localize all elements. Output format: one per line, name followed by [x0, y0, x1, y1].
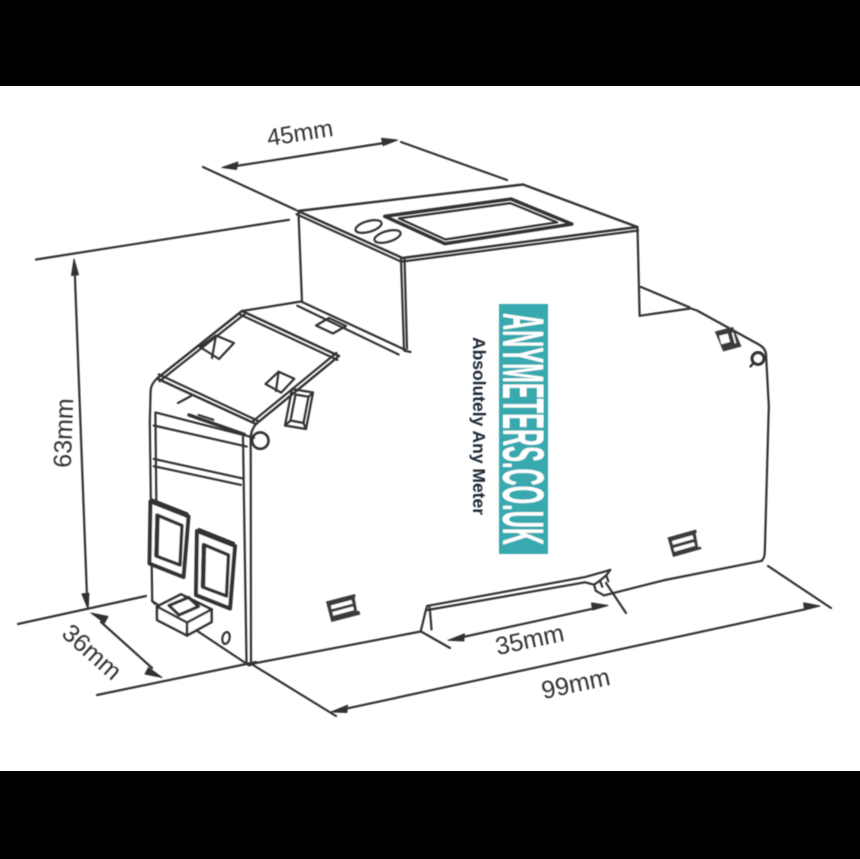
svg-text:63mm: 63mm [49, 398, 79, 468]
svg-text:ANYMETERS.CO.UK: ANYMETERS.CO.UK [490, 313, 555, 545]
svg-text:Absolutely Any Meter: Absolutely Any Meter [469, 337, 489, 515]
